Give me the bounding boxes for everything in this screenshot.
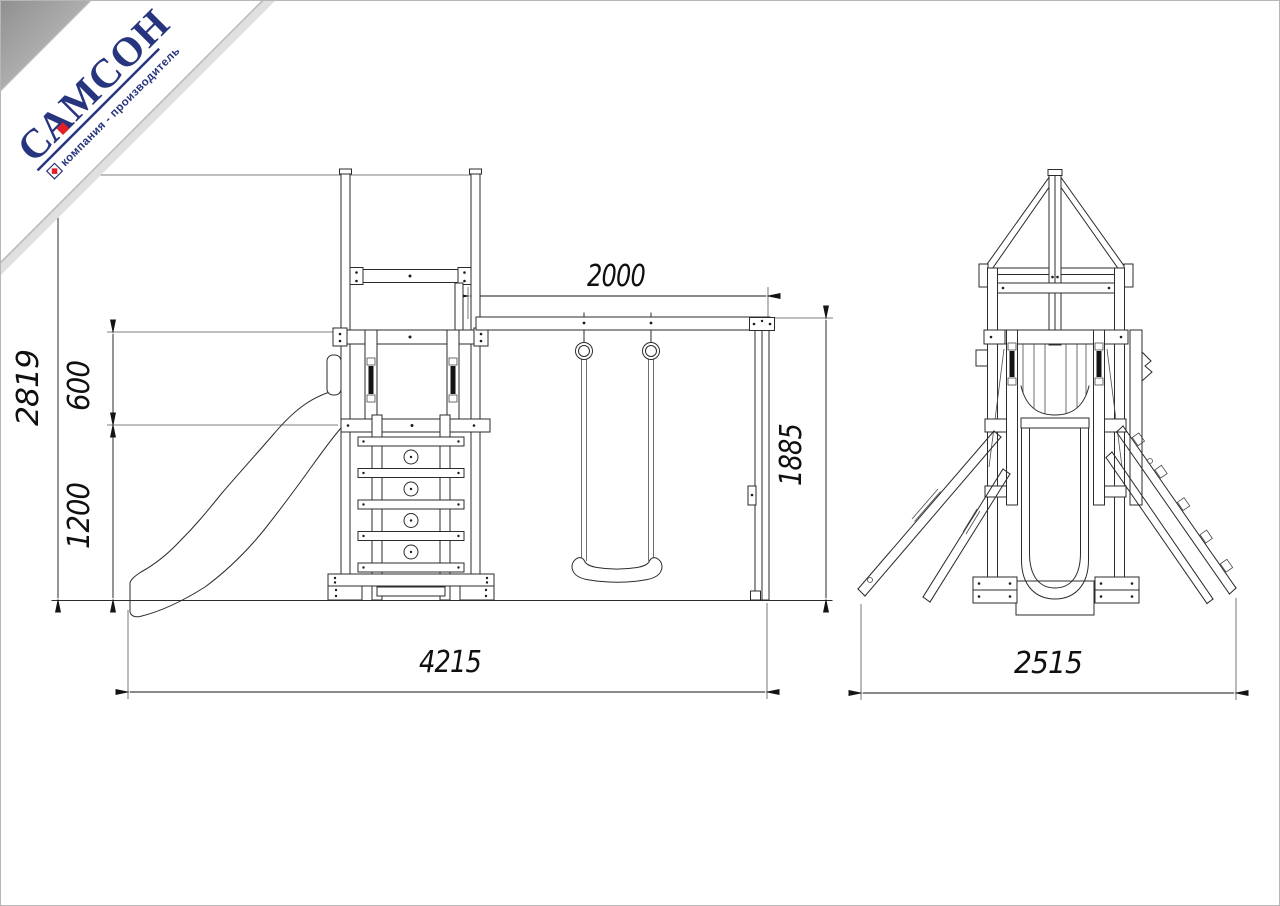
- dim-overall-length: 4215: [419, 645, 481, 680]
- dim-swing-span: 2000: [587, 259, 645, 294]
- center-mast: [1048, 170, 1062, 346]
- dim-deck-height: 1200: [62, 483, 97, 549]
- swing-beam: [476, 313, 770, 330]
- front-view: [130, 169, 775, 617]
- logo-ribbon: САМСОН компания - производитель: [0, 0, 276, 276]
- hinge-hardware: [369, 366, 374, 394]
- tagline-icon-diamond: [52, 168, 58, 174]
- deck-panel: [1021, 344, 1089, 428]
- swing-set: [572, 330, 662, 582]
- slide: [130, 389, 341, 617]
- hinge-hardware: [451, 366, 456, 394]
- dim-guardrail-height: 600: [62, 361, 97, 411]
- side-view: [858, 170, 1236, 616]
- drawing-page: 2819 600 1200 2000 1885 4215 2515: [0, 0, 1280, 906]
- dim-total-height: 2819: [11, 350, 46, 426]
- slide-chute: [1016, 428, 1094, 615]
- side-handle: [1142, 352, 1152, 381]
- swing-seat: [572, 558, 662, 583]
- dim-swing-frame-height: 1885: [774, 424, 809, 486]
- swing-end-post: [748, 318, 775, 601]
- slide-handle: [327, 355, 341, 395]
- technical-drawing: 2819 600 1200 2000 1885 4215 2515: [0, 0, 1280, 906]
- climbing-ladder: [328, 415, 494, 600]
- dim-overall-depth: 2515: [1014, 646, 1082, 681]
